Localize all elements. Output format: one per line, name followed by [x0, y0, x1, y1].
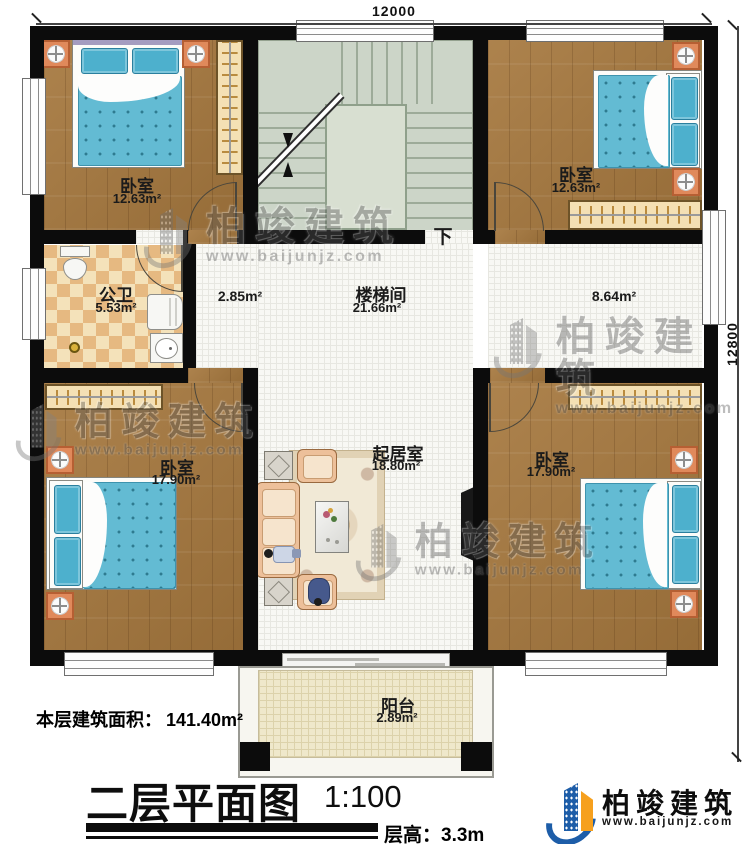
title-rule-thin — [86, 836, 378, 839]
bed-icon — [72, 38, 185, 168]
floor-area-value: 141.40m² — [166, 710, 243, 730]
stair-arrow-down-icon — [283, 133, 293, 148]
hall-area: 8.64m² — [592, 288, 636, 304]
company-website: www.baijunjz.com — [602, 816, 733, 828]
wall-segment — [30, 230, 136, 244]
person-icon — [262, 541, 302, 567]
dimension-tick — [701, 13, 712, 24]
balcony-floor — [258, 670, 473, 758]
floor-plan: 卧室 12.63m² 卧室 12.63m² 公卫 5.53m² 2.85m² 楼… — [0, 0, 750, 844]
door-leaf — [241, 383, 243, 432]
bed-icon — [580, 478, 702, 590]
dimension-tick — [727, 20, 738, 31]
wall-segment — [545, 230, 704, 244]
hall-west-floor — [196, 244, 258, 368]
hall-east-floor — [488, 244, 702, 368]
floor-drain-icon — [69, 342, 80, 353]
floor-height-note: 层高：3.3m — [384, 820, 484, 844]
door-opening — [490, 368, 545, 383]
room-area: 12.63m² — [552, 180, 600, 195]
sink-icon — [150, 333, 183, 363]
closet — [568, 384, 702, 410]
person-icon — [303, 576, 333, 610]
door-leaf — [235, 182, 237, 231]
stair-landing — [325, 104, 407, 230]
coffee-table-icon — [315, 501, 349, 553]
dimension-line-top — [36, 23, 712, 25]
washing-machine-icon — [147, 294, 183, 330]
dimension-top-value: 12000 — [372, 3, 416, 19]
balcony-column — [461, 742, 492, 771]
side-table-icon — [264, 577, 293, 606]
bed-icon — [593, 70, 702, 169]
scale-value: 1:100 — [324, 779, 402, 815]
room-area: 12.63m² — [113, 191, 161, 206]
wall-segment — [473, 26, 488, 244]
dimension-line-right — [737, 26, 739, 762]
closet — [216, 40, 243, 175]
wall-segment — [183, 244, 196, 368]
room-area: 21.66m² — [353, 300, 401, 315]
toilet-icon — [60, 246, 90, 281]
company-logo-icon — [544, 779, 602, 843]
wall-segment — [488, 230, 495, 244]
room-area: 5.53m² — [95, 300, 136, 315]
window — [702, 210, 726, 325]
title-rule-thick — [86, 823, 378, 832]
room-area: 17.90m² — [527, 464, 575, 479]
floor-area-note: 本层建筑面积：141.40m² — [36, 706, 243, 732]
door-opening — [188, 368, 243, 383]
wall-segment — [243, 26, 258, 244]
page-title: 二层平面图 — [86, 770, 301, 831]
wall-segment — [473, 368, 488, 652]
stair-arrow-up-icon — [283, 162, 293, 177]
door-leaf — [494, 182, 496, 231]
window — [22, 78, 46, 195]
stairs-down-label: 下 — [433, 222, 452, 249]
door-opening — [188, 230, 237, 244]
nightstand-lamp-icon — [46, 592, 74, 620]
nightstand-lamp-icon — [42, 40, 70, 68]
window — [22, 268, 46, 340]
bed-icon — [46, 477, 177, 590]
room-area: 18.80m² — [372, 458, 420, 473]
floor-area-label: 本层建筑面积： — [36, 710, 162, 730]
door-leaf — [489, 383, 491, 432]
balcony-column — [240, 742, 270, 771]
nightstand-lamp-icon — [670, 446, 698, 474]
room-area: 2.89m² — [376, 710, 417, 725]
closet — [45, 384, 163, 410]
window — [525, 652, 667, 676]
door-leaf — [181, 245, 183, 292]
stairs-right-flight — [407, 104, 472, 232]
nightstand-lamp-icon — [672, 42, 700, 70]
stairs-upper-flight — [328, 41, 440, 104]
wall-segment — [237, 230, 425, 244]
side-table-icon — [264, 451, 293, 480]
armchair-icon — [297, 449, 337, 483]
door-opening — [136, 230, 183, 244]
wall-segment — [243, 368, 258, 652]
nightstand-lamp-icon — [182, 40, 210, 68]
dimension-tick — [31, 13, 42, 24]
door-opening — [495, 230, 545, 244]
closet — [568, 200, 702, 230]
window — [64, 652, 214, 676]
wall-segment — [30, 368, 188, 383]
hall-area: 2.85m² — [218, 288, 262, 304]
floor-height-label: 层高： — [384, 825, 441, 844]
room-area: 17.90m² — [152, 472, 200, 487]
nightstand-lamp-icon — [46, 446, 74, 474]
wall-segment — [545, 368, 704, 383]
nightstand-lamp-icon — [670, 590, 698, 618]
floor-height-value: 3.3m — [441, 825, 484, 844]
dimension-right-value: 12800 — [706, 318, 750, 370]
nightstand-lamp-icon — [672, 168, 700, 196]
